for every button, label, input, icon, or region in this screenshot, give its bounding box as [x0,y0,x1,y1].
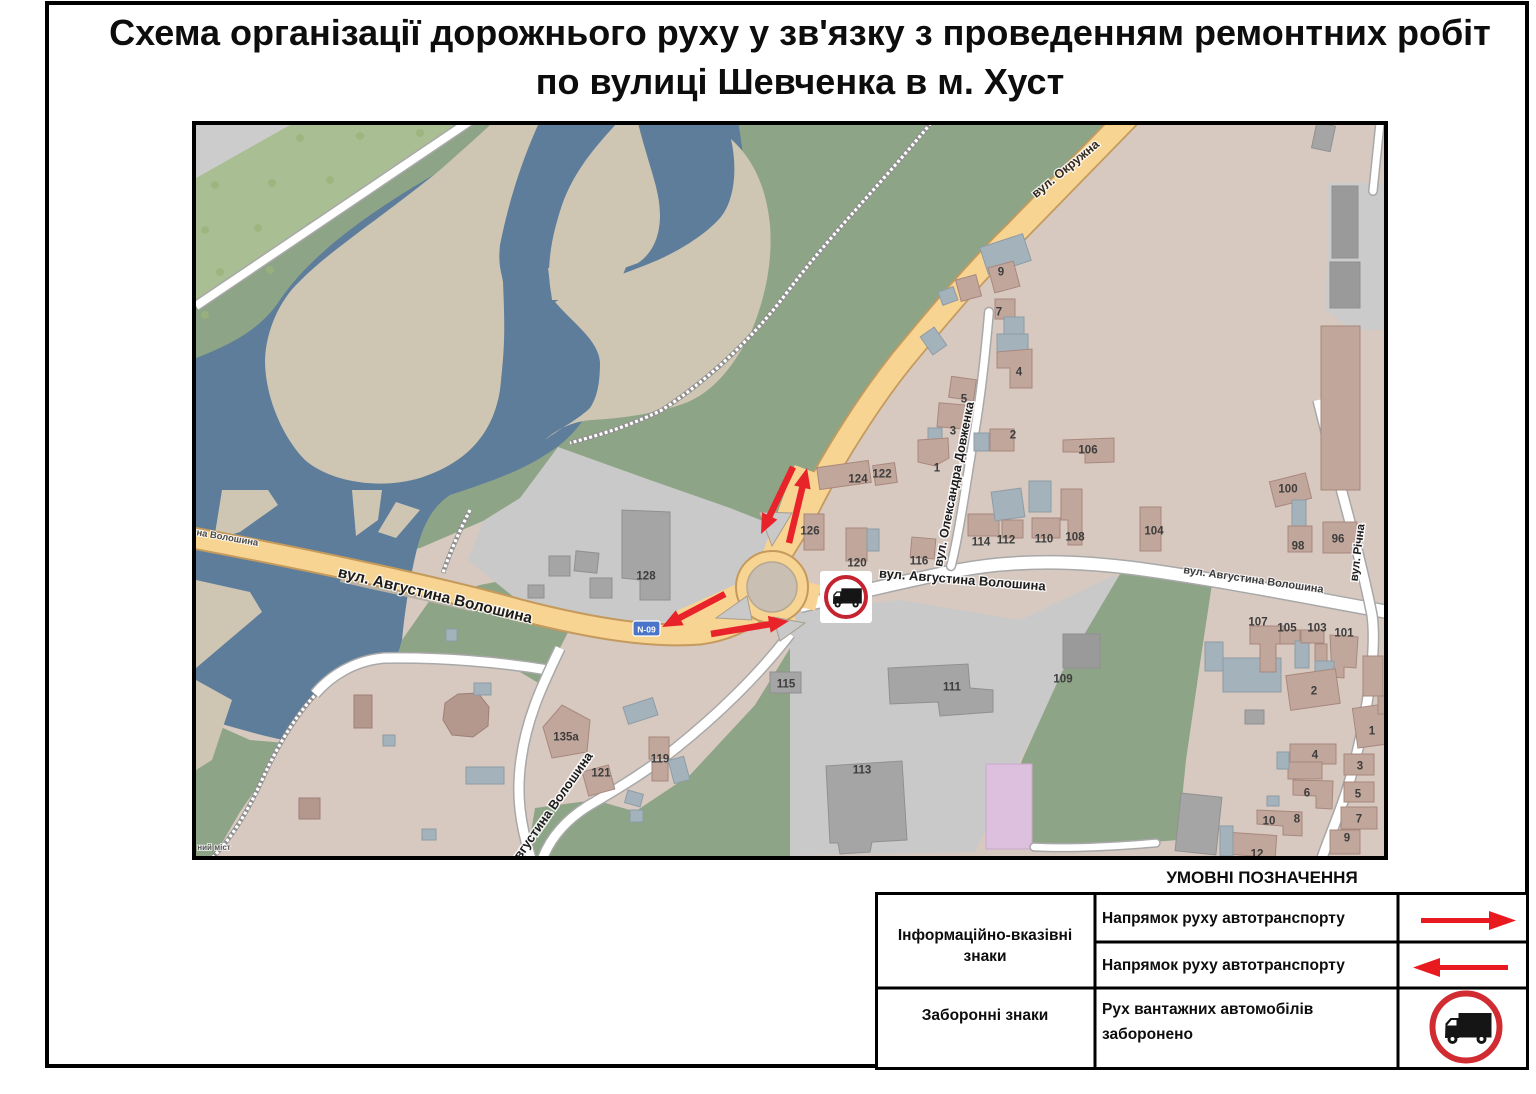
svg-text:115: 115 [777,679,796,691]
svg-text:109: 109 [1053,674,1072,686]
svg-text:111: 111 [943,682,962,694]
svg-text:135a: 135a [553,732,579,744]
svg-text:112: 112 [997,535,1016,547]
svg-text:N-09: N-09 [637,625,656,635]
svg-text:108: 108 [1065,532,1085,544]
svg-text:101: 101 [1334,628,1354,640]
svg-text:6: 6 [1304,788,1310,800]
svg-text:96: 96 [1332,534,1345,546]
svg-text:7: 7 [996,307,1002,319]
svg-text:1: 1 [1369,726,1376,738]
svg-text:12: 12 [1251,849,1264,857]
svg-text:98: 98 [1292,541,1305,553]
svg-text:100: 100 [1278,484,1297,496]
svg-text:4: 4 [1016,367,1023,379]
svg-text:ний міст: ний міст [197,843,230,852]
svg-text:107: 107 [1248,617,1267,629]
svg-text:1: 1 [934,463,941,475]
svg-text:103: 103 [1307,623,1326,635]
svg-text:122: 122 [872,469,891,481]
svg-text:9: 9 [998,267,1004,279]
svg-text:8: 8 [1294,814,1301,826]
svg-text:124: 124 [848,474,868,486]
svg-text:7: 7 [1356,814,1362,826]
svg-text:3: 3 [950,426,956,438]
svg-text:10: 10 [1263,816,1276,828]
svg-text:110: 110 [1035,534,1054,546]
svg-text:2: 2 [1311,686,1317,698]
svg-text:4: 4 [1312,750,1319,762]
svg-text:121: 121 [591,768,611,780]
svg-text:120: 120 [847,558,866,570]
svg-text:104: 104 [1144,526,1164,538]
svg-text:9: 9 [1344,833,1350,845]
svg-text:126: 126 [800,526,819,538]
svg-text:3: 3 [1357,761,1363,773]
svg-text:119: 119 [651,754,670,766]
svg-text:2: 2 [1010,430,1016,442]
svg-text:105: 105 [1277,623,1297,635]
svg-text:113: 113 [853,765,872,777]
svg-text:5: 5 [1355,789,1362,801]
svg-text:116: 116 [910,556,929,568]
svg-text:106: 106 [1078,445,1097,457]
svg-text:128: 128 [636,571,656,583]
svg-text:114: 114 [972,537,991,549]
